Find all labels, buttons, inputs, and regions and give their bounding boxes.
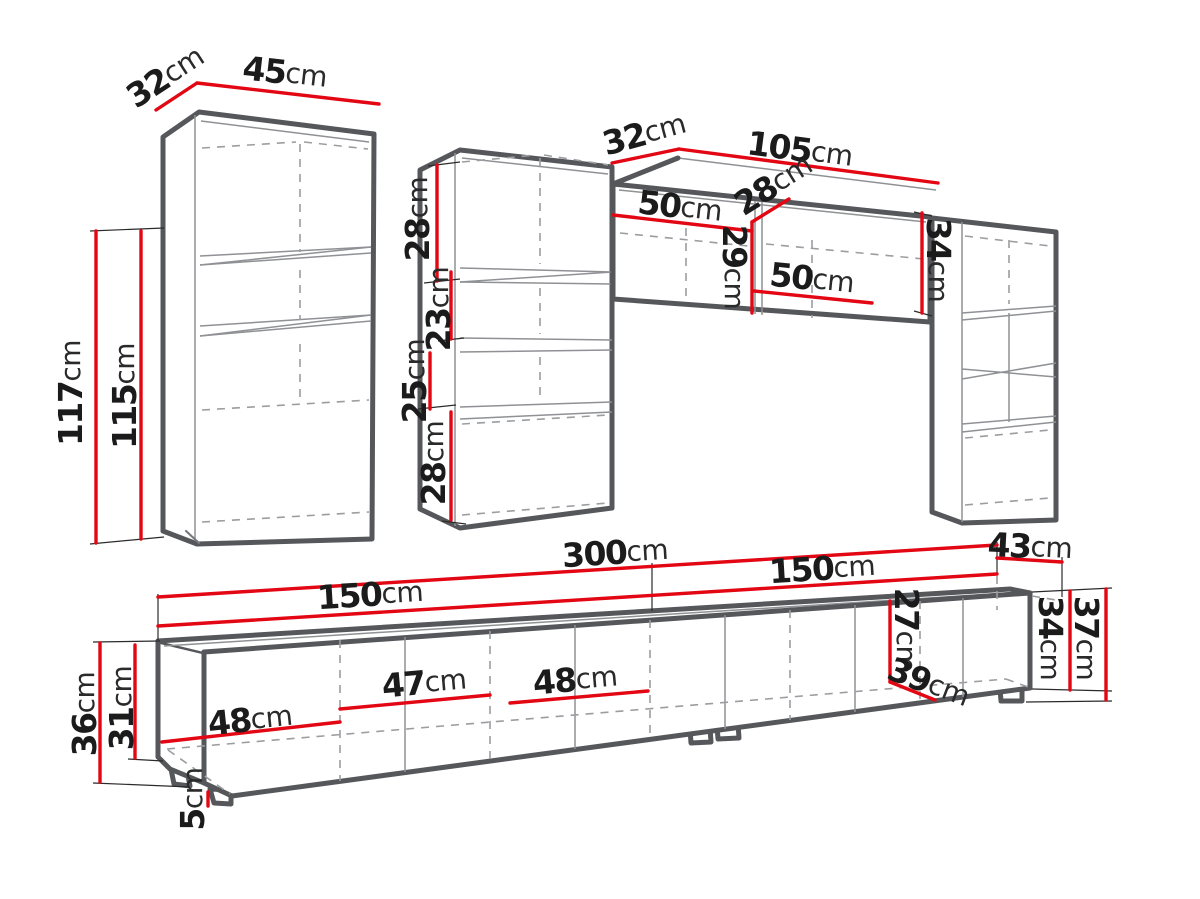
wall-horizontal-cabinet: 32cm 105cm 50cm 28cm 29cm 50cm 34cm — [598, 103, 958, 322]
dim-middle-cabinet-top-section: 28cm — [398, 177, 437, 262]
dim-stand-height-right-total: 37cm — [1068, 596, 1107, 681]
dim-middle-cabinet-shelf-gap-lower: 25cm — [395, 339, 434, 424]
dim-middle-cabinet-shelf-gap-upper: 23cm — [419, 267, 458, 352]
furniture-dimension-diagram: 32cm 45cm 117cm 115cm 28cm 23cm — [0, 0, 1200, 899]
middle-tall-cabinet: 28cm 23cm 25cm 28cm — [395, 150, 613, 528]
tv-stand: 300cm 150cm 150cm 43cm 48cm 47cm 48cm 36… — [65, 524, 1113, 830]
dim-wall-cabinet-height: 34cm — [920, 218, 959, 303]
diagram-canvas: 32cm 45cm 117cm 115cm 28cm 23cm — [0, 0, 1200, 899]
dim-stand-leg-height: 5cm — [173, 767, 212, 830]
dim-wall-cabinet-depth: 32cm — [598, 103, 690, 163]
dim-wall-cabinet-inner-height: 29cm — [716, 225, 755, 310]
dim-stand-depth: 43cm — [987, 524, 1074, 567]
stand-left-side — [158, 641, 204, 783]
dim-stand-height-right-body: 34cm — [1032, 596, 1071, 681]
dim-left-cabinet-height-total: 117cm — [51, 340, 90, 446]
dim-stand-height-body: 31cm — [102, 666, 141, 751]
dim-middle-cabinet-bottom-section: 28cm — [414, 421, 453, 506]
dim-left-cabinet-height-body: 115cm — [105, 343, 144, 449]
left-tall-cabinet: 32cm 45cm 117cm 115cm — [51, 37, 380, 544]
dim-stand-height-total: 36cm — [65, 672, 104, 757]
